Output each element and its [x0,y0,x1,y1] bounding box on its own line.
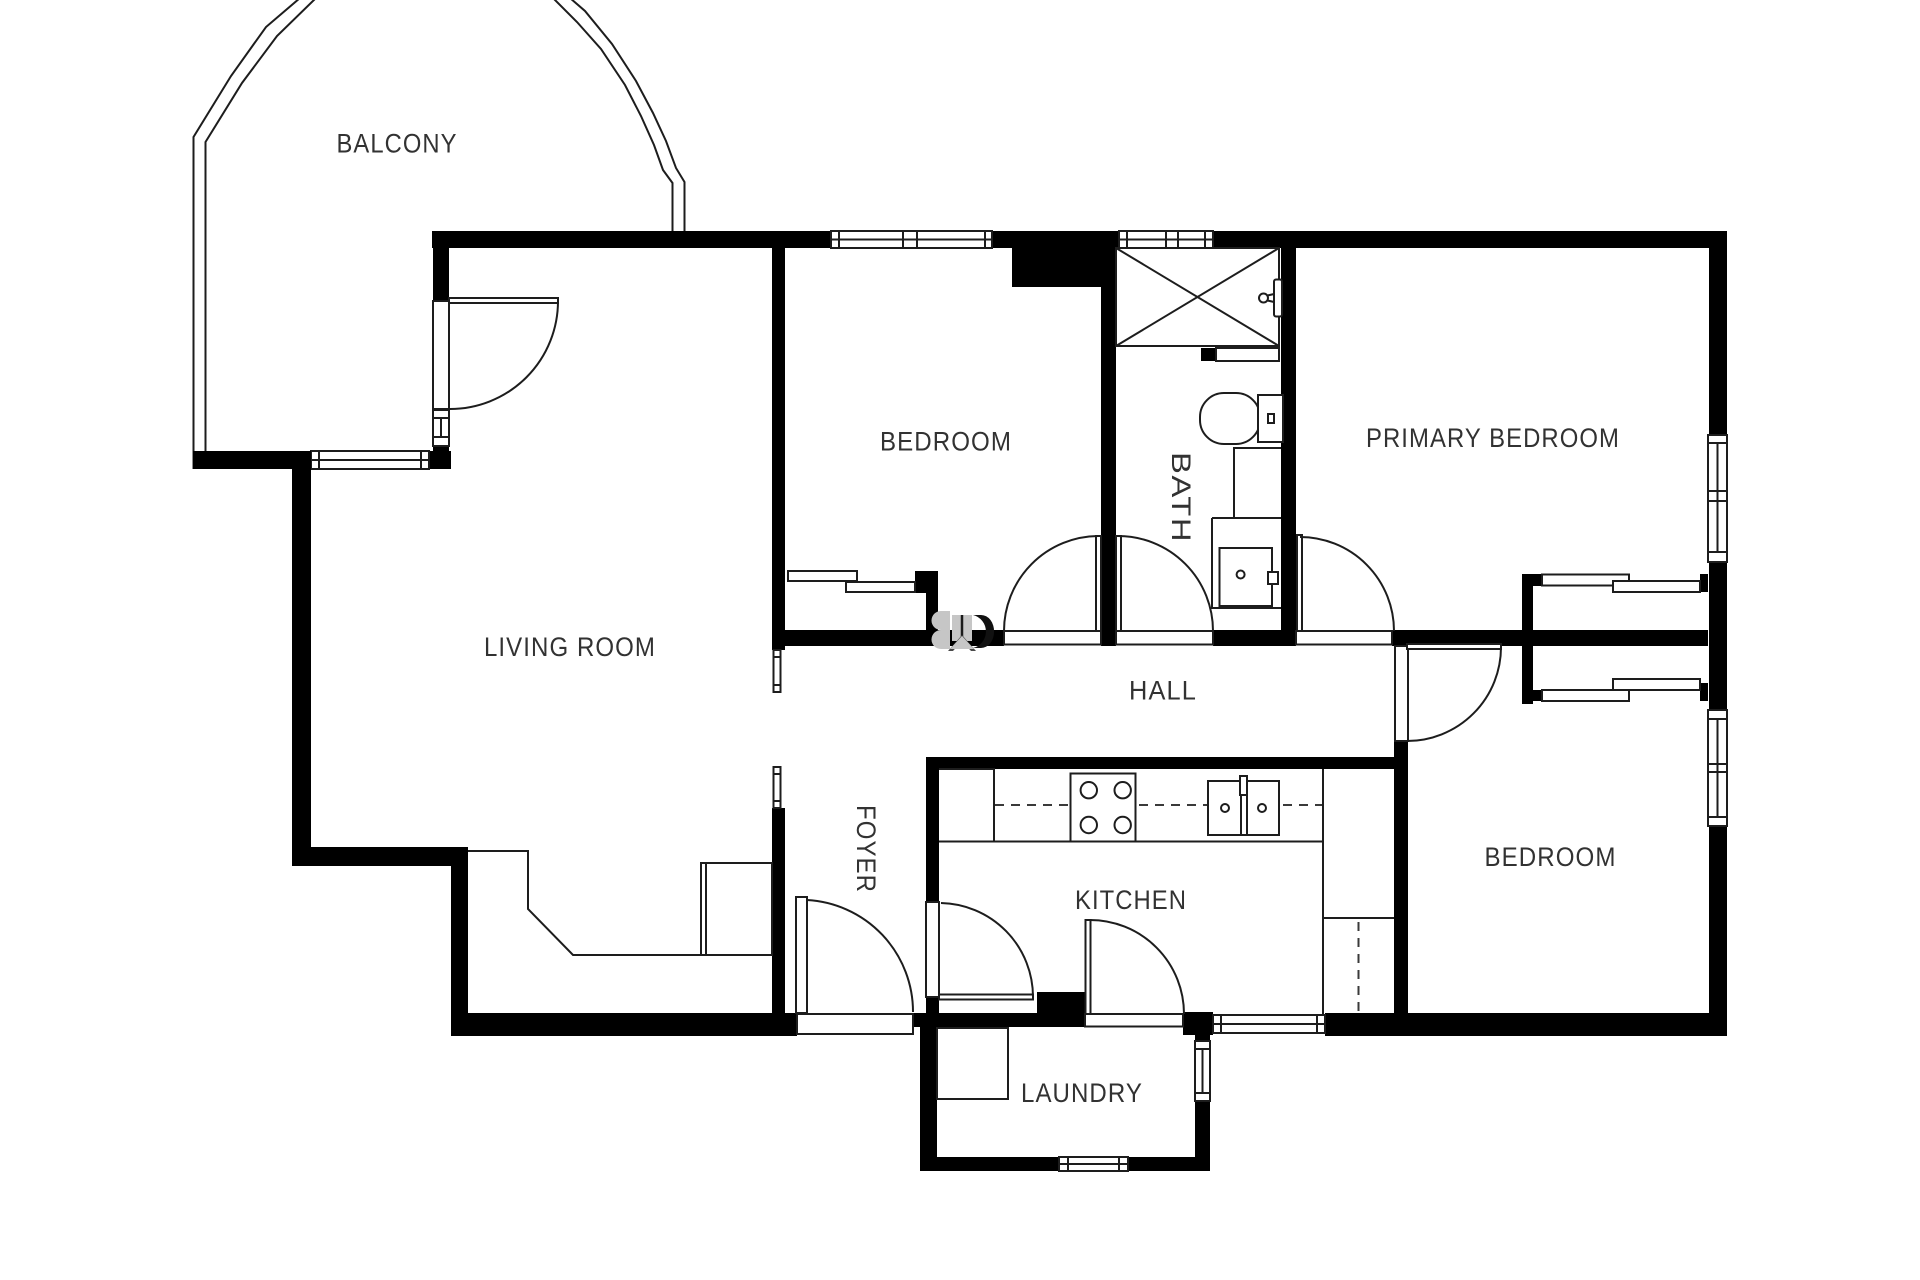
svg-text:LIVING ROOM: LIVING ROOM [484,632,656,662]
svg-text:BALCONY: BALCONY [337,129,458,159]
svg-text:BEDROOM: BEDROOM [1485,842,1617,872]
svg-text:FOYER: FOYER [851,805,881,893]
svg-text:PRIMARY BEDROOM: PRIMARY BEDROOM [1366,423,1620,453]
svg-text:BATH: BATH [1166,452,1196,543]
svg-text:HALL: HALL [1129,676,1197,706]
svg-text:KITCHEN: KITCHEN [1075,885,1187,915]
svg-text:BEDROOM: BEDROOM [880,427,1012,457]
svg-text:LAUNDRY: LAUNDRY [1021,1078,1143,1108]
